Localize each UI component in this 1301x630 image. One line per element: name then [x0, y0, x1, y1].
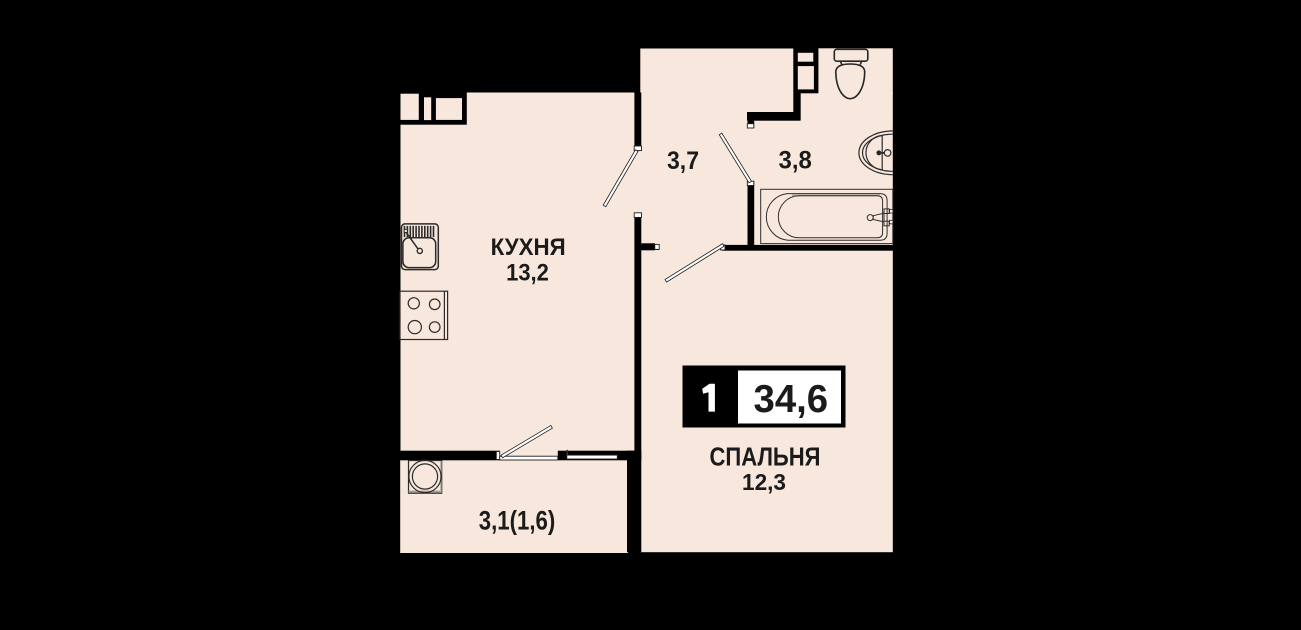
svg-text:3,7: 3,7: [667, 147, 699, 175]
svg-text:12,3: 12,3: [742, 469, 786, 495]
svg-text:СПАЛЬНЯ: СПАЛЬНЯ: [710, 442, 821, 472]
svg-text:3,8: 3,8: [779, 147, 812, 175]
svg-text:КУХНЯ: КУХНЯ: [491, 234, 566, 261]
svg-text:34,6: 34,6: [754, 378, 829, 421]
svg-text:13,2: 13,2: [506, 260, 549, 287]
svg-text:3,1(1,6): 3,1(1,6): [479, 506, 556, 536]
